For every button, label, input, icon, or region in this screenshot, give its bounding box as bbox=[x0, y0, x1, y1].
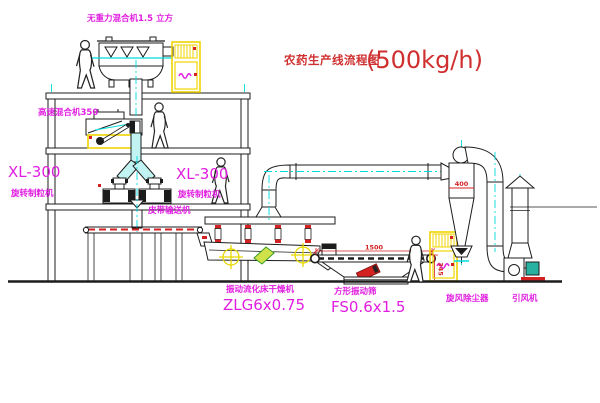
column-left bbox=[48, 93, 55, 281]
label-cyclone: 旋风除尘器 bbox=[445, 293, 489, 304]
drawing-canvas: 农药生产线流程图 (500kg/h) 无重力混合机1.5 立方 高速混合机350… bbox=[0, 0, 600, 403]
label-xl300-right: XL-300 bbox=[176, 165, 228, 183]
dim-screen-length: 1500 bbox=[365, 244, 384, 252]
label-belt-conveyor: 皮带输送机 bbox=[147, 205, 191, 216]
dryer-hood bbox=[205, 217, 335, 224]
dim-screen-height: 345 bbox=[437, 262, 445, 276]
motor-pulley bbox=[96, 137, 104, 145]
label-dryer-name: 振动流化床干燥机 bbox=[226, 284, 295, 295]
rain-cap bbox=[506, 176, 534, 188]
y-distribution-pipe bbox=[117, 133, 155, 182]
floor-slab-2 bbox=[46, 148, 250, 154]
label-screen-model: FS0.6x1.5 bbox=[331, 298, 405, 316]
label-high-speed-mixer: 高速混合机350 bbox=[38, 107, 98, 118]
granulator-left bbox=[98, 178, 135, 203]
worker-figure bbox=[151, 103, 168, 148]
belt-conveyor bbox=[83, 227, 213, 282]
exhaust-duct bbox=[256, 163, 452, 220]
label-granulator-left: 旋转制粒机 bbox=[10, 188, 54, 199]
indicator-dot bbox=[193, 47, 196, 50]
diagram-capacity: (500kg/h) bbox=[366, 46, 483, 74]
cad-diagram: 农药生产线流程图 (500kg/h) 无重力混合机1.5 立方 高速混合机350… bbox=[0, 0, 600, 403]
control-cabinet-top bbox=[172, 42, 200, 92]
floor-slab-1 bbox=[46, 93, 250, 99]
label-granulator-right: 旋转制粒机 bbox=[177, 189, 221, 200]
granulator-right bbox=[139, 178, 171, 203]
induced-draft-fan bbox=[504, 258, 545, 282]
worker-figure bbox=[407, 236, 424, 282]
spring-mounts bbox=[215, 225, 311, 243]
worker-figure bbox=[77, 40, 95, 88]
label-xl300-left: XL-300 bbox=[8, 163, 60, 181]
fan-motor bbox=[526, 262, 539, 275]
dim-cyclone-dia: 400 bbox=[455, 180, 469, 188]
label-screen-name: 方形振动筛 bbox=[334, 286, 377, 297]
motor-symbol-icon bbox=[179, 74, 191, 79]
label-fan: 引风机 bbox=[512, 293, 538, 304]
label-dryer-model: ZLG6x0.75 bbox=[223, 296, 305, 314]
label-gravity-mixer: 无重力混合机1.5 立方 bbox=[86, 13, 174, 24]
